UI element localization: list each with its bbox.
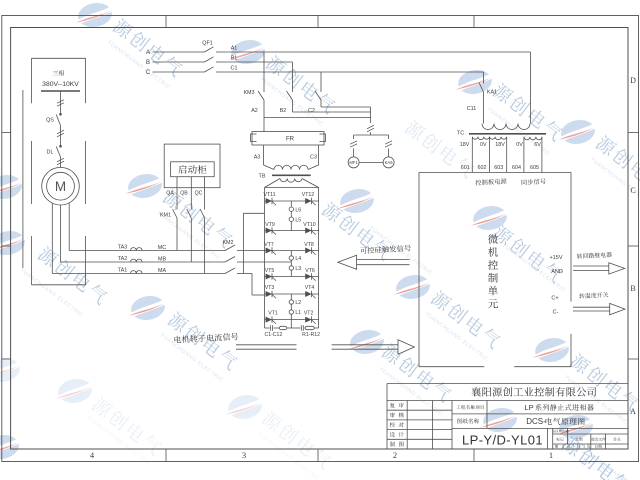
svg-text:3: 3 xyxy=(242,450,246,460)
svg-text:MB: MB xyxy=(158,256,166,262)
svg-text:TC: TC xyxy=(457,130,464,136)
svg-text:4: 4 xyxy=(90,450,95,460)
svg-text:LP: LP xyxy=(524,403,533,412)
svg-text:VT5: VT5 xyxy=(265,268,275,274)
svg-text:B: B xyxy=(146,60,150,66)
svg-text:L4: L4 xyxy=(295,256,301,262)
svg-text:VT8: VT8 xyxy=(304,242,314,248)
svg-text:601: 601 xyxy=(461,165,470,171)
svg-text:A3: A3 xyxy=(254,154,261,160)
svg-text:VT11: VT11 xyxy=(263,192,275,198)
svg-text:DCS-: DCS- xyxy=(526,417,546,426)
svg-text:VT9: VT9 xyxy=(265,222,275,228)
svg-text:D: D xyxy=(630,76,636,85)
svg-text:MA: MA xyxy=(158,268,166,274)
svg-text:C-: C- xyxy=(553,309,559,315)
svg-text:DL: DL xyxy=(47,149,54,155)
svg-text:QS: QS xyxy=(46,117,54,123)
svg-text:604: 604 xyxy=(512,165,521,171)
svg-text:QC: QC xyxy=(195,191,203,197)
svg-text:AND: AND xyxy=(551,269,563,275)
svg-text:KM3: KM3 xyxy=(243,90,254,96)
svg-text:LP-Y/D-YL01: LP-Y/D-YL01 xyxy=(462,433,543,448)
svg-text:TA3: TA3 xyxy=(118,245,128,251)
svg-text:TA2: TA2 xyxy=(118,256,128,262)
svg-text:1: 1 xyxy=(549,450,553,460)
svg-text:QF1: QF1 xyxy=(202,40,212,46)
svg-text:VT4: VT4 xyxy=(305,285,315,291)
svg-text:1: 1 xyxy=(583,445,585,449)
svg-text:/: / xyxy=(573,445,575,449)
svg-text:L6: L6 xyxy=(295,207,301,213)
svg-text:605: 605 xyxy=(530,165,539,171)
svg-text:L3: L3 xyxy=(295,266,301,272)
svg-text:KA1: KA1 xyxy=(487,89,497,95)
svg-text:A2: A2 xyxy=(251,108,258,114)
svg-text:18V: 18V xyxy=(460,142,470,148)
svg-text:FR: FR xyxy=(286,136,295,142)
svg-text:603: 603 xyxy=(494,165,503,171)
svg-text:C1: C1 xyxy=(231,65,238,71)
svg-text:R1-R12: R1-R12 xyxy=(302,332,320,338)
svg-text:0V: 0V xyxy=(516,142,523,148)
svg-text:C+: C+ xyxy=(551,295,558,301)
svg-text:VT2: VT2 xyxy=(304,310,314,316)
svg-text:B2: B2 xyxy=(280,108,287,114)
svg-text:L1: L1 xyxy=(295,310,301,316)
svg-text:380V--10KV: 380V--10KV xyxy=(42,81,79,88)
svg-text:C: C xyxy=(146,70,151,76)
svg-text:MF1: MF1 xyxy=(349,160,358,165)
svg-text:KM2: KM2 xyxy=(222,240,233,246)
svg-text:L5: L5 xyxy=(295,217,301,223)
svg-text:2: 2 xyxy=(393,450,397,460)
svg-text:C11: C11 xyxy=(467,106,477,112)
svg-text:MC: MC xyxy=(158,245,166,251)
svg-text:C1-C12: C1-C12 xyxy=(264,332,282,338)
svg-text:B: B xyxy=(630,284,635,293)
svg-text:TB: TB xyxy=(259,173,266,179)
svg-text:TA1: TA1 xyxy=(118,268,128,274)
svg-text:/: / xyxy=(472,405,474,410)
svg-text:M: M xyxy=(55,179,66,194)
svg-text:A: A xyxy=(146,50,150,56)
svg-text:2: 2 xyxy=(562,445,564,449)
svg-text:KM1: KM1 xyxy=(160,212,171,218)
svg-text:18V: 18V xyxy=(495,142,505,148)
svg-text:VT3: VT3 xyxy=(265,285,275,291)
svg-text:A: A xyxy=(630,407,636,416)
svg-text:VT12: VT12 xyxy=(302,192,315,198)
svg-text:C: C xyxy=(630,186,635,195)
svg-text:QB: QB xyxy=(180,191,188,197)
svg-text:0V: 0V xyxy=(480,142,487,148)
svg-text:VT7: VT7 xyxy=(264,242,274,248)
svg-text:A1: A1 xyxy=(231,45,238,51)
svg-text:602: 602 xyxy=(478,165,487,171)
svg-text:VT1: VT1 xyxy=(268,310,278,316)
svg-text:VT10: VT10 xyxy=(303,222,316,228)
svg-text:B1: B1 xyxy=(231,55,238,61)
svg-text:KA6: KA6 xyxy=(385,160,394,165)
svg-text:C3: C3 xyxy=(310,154,317,160)
svg-text:L2: L2 xyxy=(295,300,301,306)
svg-text:QA: QA xyxy=(166,191,174,197)
svg-text:+15V: +15V xyxy=(550,255,563,261)
svg-text:VT6: VT6 xyxy=(305,268,315,274)
svg-text:C2: C2 xyxy=(308,108,315,114)
svg-text:6V: 6V xyxy=(534,142,541,148)
